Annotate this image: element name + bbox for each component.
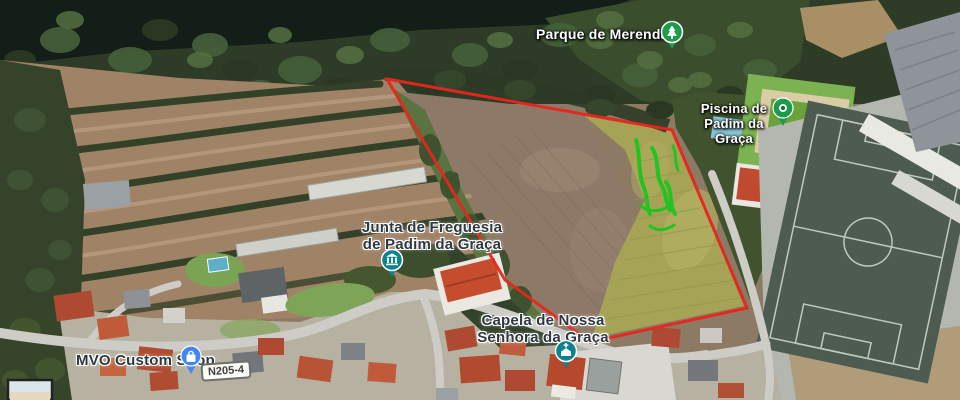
chapel-pin[interactable] (554, 339, 578, 369)
inset-thumbnail[interactable] (8, 380, 52, 400)
satellite-map-view[interactable]: Parque de Merendas Piscina de Padim da G… (0, 0, 960, 400)
road-shield: N205-4 (200, 360, 251, 381)
chapel-label-line1: Capela de Nossa (468, 312, 618, 329)
park-pin[interactable] (660, 20, 684, 50)
pool-pin[interactable] (772, 97, 794, 127)
parish-label-line2: de Padim da Graça (344, 236, 520, 253)
backyard-pool (207, 257, 229, 273)
park-label[interactable]: Parque de Merendas (536, 26, 677, 42)
parish-label[interactable]: Junta de Freguesia de Padim da Graça (344, 219, 520, 254)
pool-label[interactable]: Piscina de Padim da Graça (686, 102, 782, 147)
pool-label-line2: Padim da Graça (686, 117, 782, 147)
parish-pin[interactable] (380, 248, 404, 278)
shop-pin[interactable] (180, 345, 202, 375)
chapel-label[interactable]: Capela de Nossa Senhora da Graça (468, 312, 618, 347)
chapel-label-line2: Senhora da Graça (468, 329, 618, 346)
pool-label-line1: Piscina de (686, 102, 782, 117)
parish-label-line1: Junta de Freguesia (344, 219, 520, 236)
